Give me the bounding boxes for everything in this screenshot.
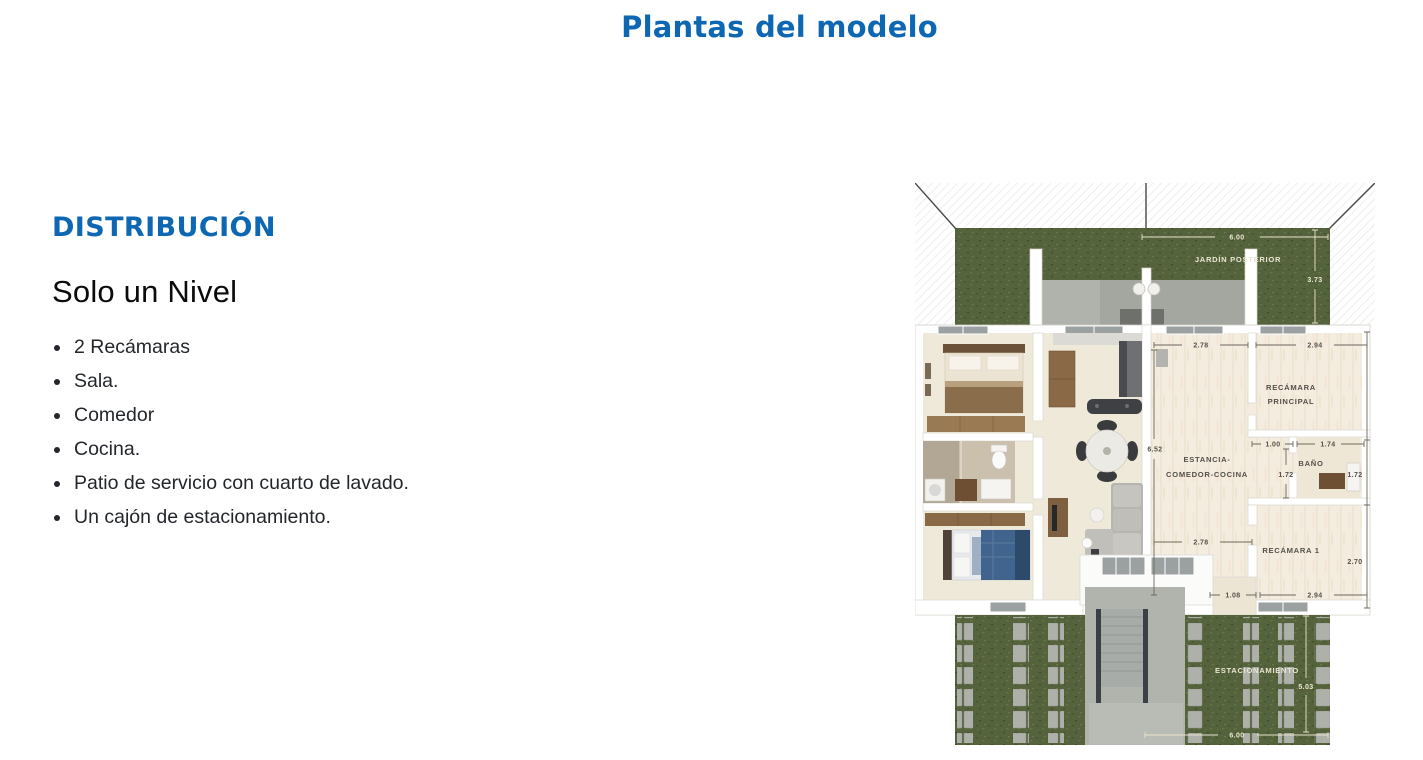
dim-bano-width: 1.74 (1320, 442, 1335, 449)
dim-estancia-width-top: 2.78 (1193, 343, 1208, 350)
bathroom-furniture (923, 441, 1015, 503)
water-heater-icon (1133, 283, 1145, 295)
dim-bano-depth-right: 1.72 (1347, 472, 1362, 479)
house (915, 325, 1370, 615)
dim-recamara-principal-width: 2.94 (1307, 343, 1322, 350)
list-item: Un cajón de estacionamiento. (52, 507, 652, 528)
distribution-list: 2 Recámaras Sala. Comedor Cocina. Patio … (52, 337, 652, 528)
front-window (990, 602, 1026, 612)
room-label-bano: BAÑO (1298, 459, 1323, 468)
room-label-jardin: JARDÍN POSTERIOR (1195, 255, 1281, 264)
room-label-estacionamiento: ESTACIONAMIENTO (1215, 666, 1299, 675)
distribution-section: DISTRIBUCIÓN Solo un Nivel 2 Recámaras S… (52, 212, 652, 541)
room-label-recamara-principal-1: RECÁMARA (1266, 383, 1316, 392)
list-item: Patio de servicio con cuarto de lavado. (52, 473, 652, 494)
dim-interior-depth: 6.52 (1147, 447, 1162, 454)
room-label-estancia-2: COMEDOR-COCINA (1166, 470, 1248, 479)
dim-estancia-width-bottom: 2.78 (1193, 540, 1208, 547)
list-item: Comedor (52, 405, 652, 426)
dim-bano-depth-left: 1.72 (1278, 472, 1293, 479)
water-heater-icon (1148, 283, 1160, 295)
list-item: Cocina. (52, 439, 652, 460)
dim-jardin-depth: 3.73 (1307, 277, 1322, 284)
jardin-area (955, 228, 1330, 325)
page-title: Plantas del modelo (68, 10, 1423, 44)
dim-estacionamiento-width: 6.00 (1229, 733, 1244, 740)
dim-recamara-1-depth: 2.70 (1347, 559, 1362, 566)
room-label-estancia-1: ESTANCIA- (1183, 455, 1230, 464)
dim-estacionamiento-depth: 5.03 (1298, 684, 1313, 691)
distribution-heading: DISTRIBUCIÓN (52, 212, 652, 243)
room-label-recamara-principal-2: PRINCIPAL (1268, 397, 1315, 406)
dim-jardin-width: 6.00 (1229, 235, 1244, 242)
list-item: Sala. (52, 371, 652, 392)
page: Plantas del modelo DISTRIBUCIÓN Solo un … (0, 0, 1423, 760)
list-item: 2 Recámaras (52, 337, 652, 358)
distribution-subheading: Solo un Nivel (52, 274, 652, 310)
dim-bano-left-width: 1.00 (1265, 442, 1280, 449)
dim-recamara-1-width: 2.94 (1307, 593, 1322, 600)
floorplan-figure: 6.00 3.73 2.78 2.94 6.52 1.00 1.74 1.72 … (915, 183, 1375, 745)
dim-patio-servicio-width: 1.08 (1225, 593, 1240, 600)
room-label-recamara-1: RECÁMARA 1 (1262, 546, 1319, 555)
floorplan-svg: 6.00 3.73 2.78 2.94 6.52 1.00 1.74 1.72 … (915, 183, 1375, 745)
back-door (1156, 349, 1168, 367)
